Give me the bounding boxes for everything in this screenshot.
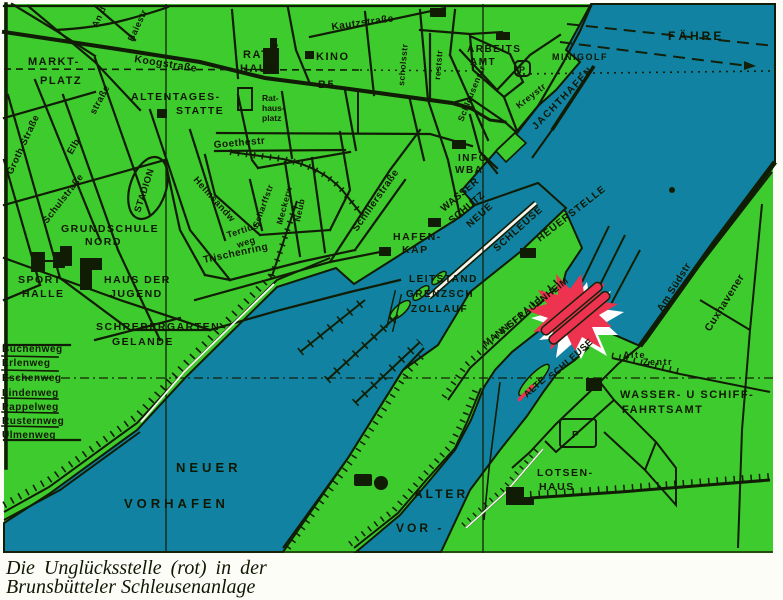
svg-text:ZOLLAUF: ZOLLAUF [411,304,468,315]
svg-text:B5: B5 [318,79,335,91]
svg-text:WASSER- U SCHIFF-: WASSER- U SCHIFF- [620,389,754,401]
svg-text:JUGEND: JUGEND [110,288,163,300]
svg-text:SCHREBERGARTEN-: SCHREBERGARTEN- [96,321,225,333]
svg-text:KAP: KAP [402,244,429,256]
svg-text:LEITSTAND: LEITSTAND [409,274,478,285]
svg-text:Erlenweg: Erlenweg [2,358,50,369]
svg-text:platz: platz [262,113,281,123]
svg-text:Lindenweg: Lindenweg [2,388,59,399]
svg-text:P: P [519,65,527,75]
svg-text:Buchenweg: Buchenweg [2,344,63,355]
svg-text:NORD: NORD [85,236,122,248]
svg-text:Rat-: Rat- [262,93,279,103]
svg-text:Eschenweg: Eschenweg [2,373,62,384]
svg-text:NEUER: NEUER [176,460,242,475]
svg-text:FÄHRE: FÄHRE [668,28,724,43]
svg-text:STATTE: STATTE [176,105,224,117]
svg-text:P: P [572,430,580,441]
svg-text:ARBEITS: ARBEITS [467,44,521,55]
svg-text:HAUS: HAUS [539,481,575,493]
svg-text:INFO: INFO [458,153,488,164]
svg-text:MARKT-: MARKT- [28,56,80,68]
svg-text:Rusternweg: Rusternweg [2,416,64,427]
svg-text:RAT: RAT [243,49,269,61]
svg-text:LOTSEN-: LOTSEN- [537,467,594,479]
svg-text:KINO: KINO [316,51,350,63]
svg-text:Ulmenweg: Ulmenweg [2,430,56,441]
svg-text:ALTER: ALTER [414,487,468,501]
svg-text:FAHRTSAMT: FAHRTSAMT [622,404,703,416]
svg-text:P: P [272,42,280,52]
svg-text:GRENZSCH: GRENZSCH [406,289,474,300]
svg-text:GELANDE: GELANDE [112,336,174,348]
svg-text:ALTENTAGES-: ALTENTAGES- [131,91,221,103]
svg-text:PLATZ: PLATZ [40,75,82,87]
svg-text:VORHAFEN: VORHAFEN [124,496,229,511]
svg-text:Brunsbütteler Schleusenanlage: Brunsbütteler Schleusenanlage [6,576,256,598]
svg-text:HAUS DER: HAUS DER [104,274,171,286]
svg-text:Pappelweg: Pappelweg [2,402,59,413]
svg-text:HALLE: HALLE [22,288,65,300]
svg-text:SPORT-: SPORT- [18,274,66,286]
svg-text:HAUS: HAUS [240,63,277,75]
svg-text:WBA: WBA [455,165,483,176]
svg-text:MINIGOLF: MINIGOLF [552,52,608,62]
svg-text:HAFEN-: HAFEN- [393,231,442,243]
svg-text:VOR -: VOR - [396,521,444,535]
svg-text:Zentr: Zentr [643,357,673,367]
svg-text:haus-: haus- [262,103,285,113]
svg-text:GRUNDSCHULE: GRUNDSCHULE [61,223,159,235]
